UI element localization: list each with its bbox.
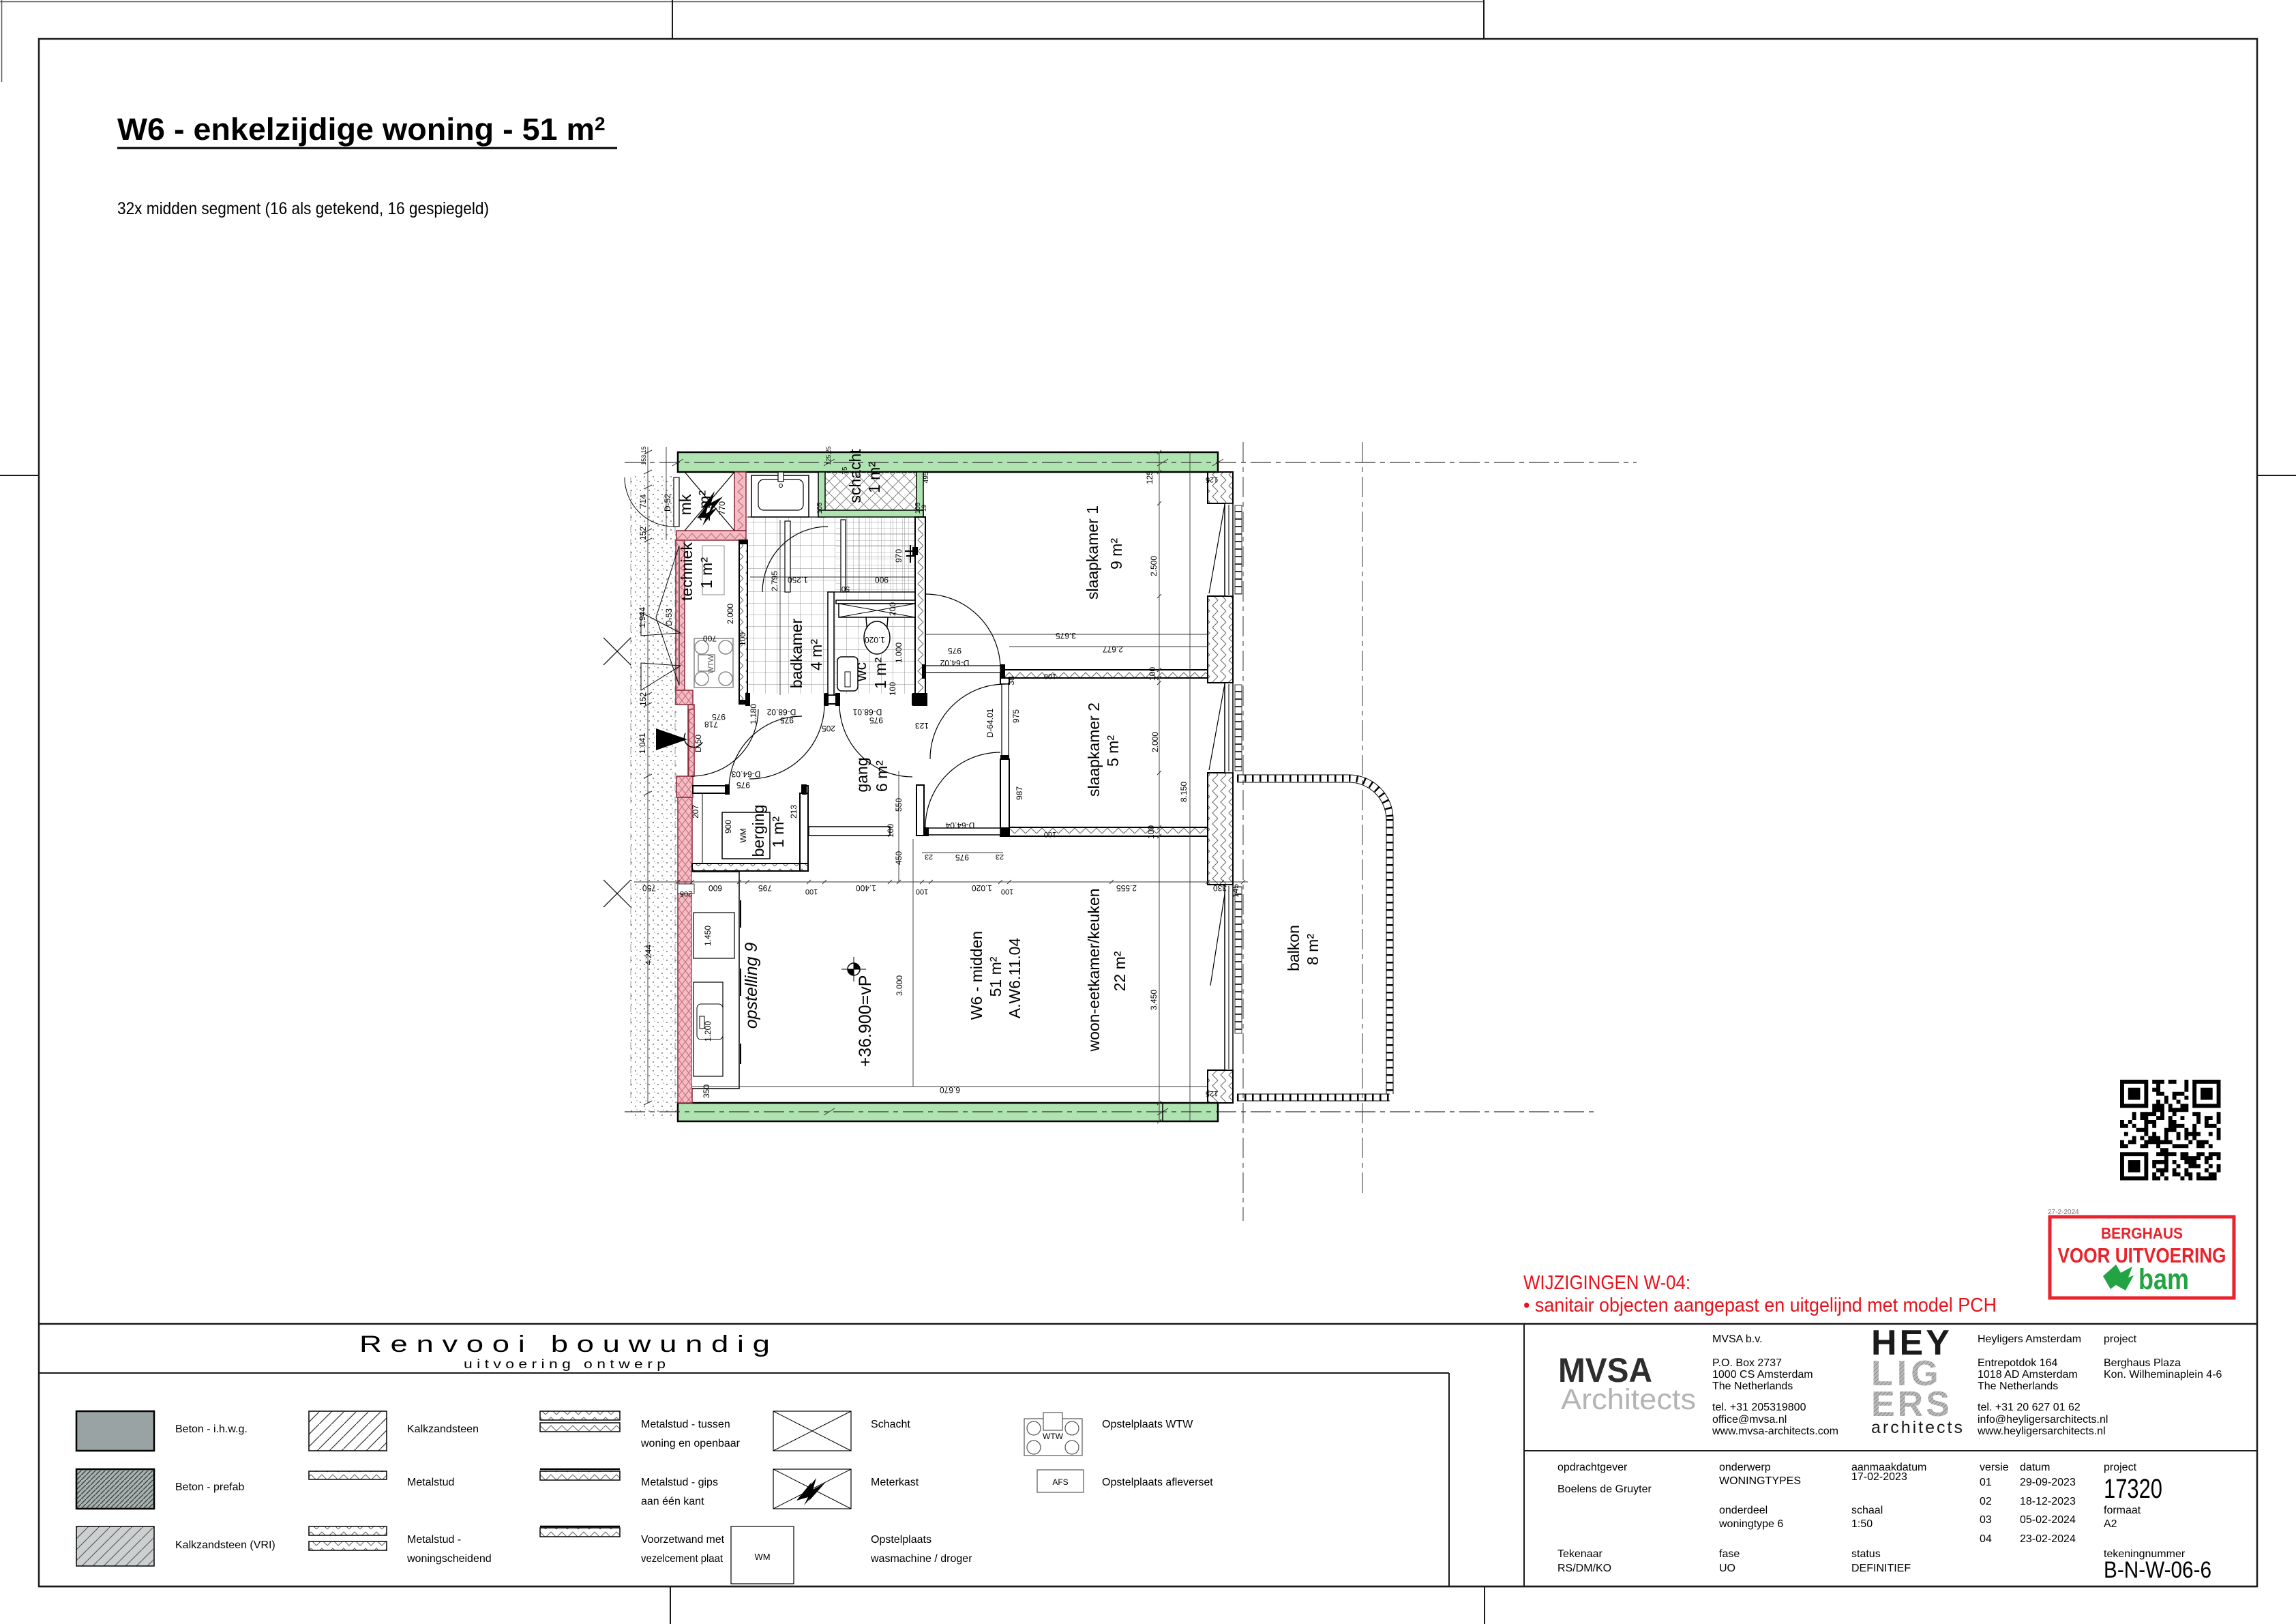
svg-text:38: 38: [1007, 676, 1016, 685]
svg-text:100: 100: [805, 887, 818, 896]
svg-text:tel. +31 205319800: tel. +31 205319800: [1712, 1402, 1806, 1413]
svg-text:Heyligers Amsterdam: Heyligers Amsterdam: [1978, 1333, 2081, 1345]
svg-text:P.O. Box 2737: P.O. Box 2737: [1712, 1357, 1782, 1369]
svg-text:versie: versie: [1980, 1462, 2009, 1473]
svg-text:123: 123: [915, 721, 929, 730]
svg-text:Architects: Architects: [1561, 1383, 1696, 1416]
svg-text:onderwerp: onderwerp: [1719, 1462, 1771, 1473]
svg-text:DEFINITIEF: DEFINITIEF: [1851, 1563, 1911, 1574]
svg-text:770: 770: [717, 501, 727, 515]
svg-text:152: 152: [638, 527, 648, 540]
svg-text:bam: bam: [2138, 1263, 2189, 1296]
svg-text:970: 970: [894, 549, 904, 563]
svg-text:woningscheidend: woningscheidend: [406, 1553, 492, 1565]
svg-text:Opstelplaats: Opstelplaats: [871, 1534, 931, 1546]
svg-text:29-09-2023: 29-09-2023: [2020, 1477, 2076, 1488]
svg-text:schaal: schaal: [1851, 1505, 1883, 1516]
svg-text:schacht: schacht: [846, 449, 864, 503]
svg-text:105: 105: [816, 502, 824, 514]
svg-text:woningtype 6: woningtype 6: [1718, 1518, 1783, 1530]
svg-text:8 m²: 8 m²: [1304, 934, 1322, 965]
svg-text:100: 100: [1148, 667, 1157, 681]
svg-text:opdrachtgever: opdrachtgever: [1557, 1462, 1628, 1473]
svg-text:project: project: [2104, 1333, 2137, 1345]
svg-text:WM: WM: [739, 828, 748, 842]
svg-text:1.041: 1.041: [638, 733, 647, 754]
svg-text:berging: berging: [749, 805, 767, 857]
svg-text:2.555: 2.555: [1116, 883, 1137, 893]
svg-text:1 m²: 1 m²: [865, 462, 883, 493]
svg-text:fase: fase: [1719, 1548, 1740, 1560]
svg-text:Schacht: Schacht: [871, 1419, 910, 1430]
svg-text:550: 550: [894, 798, 904, 812]
svg-text:W6 - enkelzijdige woning - 51: W6 - enkelzijdige woning - 51 m2: [117, 112, 606, 147]
svg-text:B-N-W-06-6: B-N-W-06-6: [2104, 1557, 2211, 1583]
svg-text:3.450: 3.450: [1149, 990, 1159, 1010]
svg-text:Metalstud - tussen: Metalstud - tussen: [641, 1419, 730, 1430]
svg-text:opstelling 9: opstelling 9: [742, 943, 761, 1029]
svg-text:795: 795: [758, 883, 772, 893]
svg-text:207: 207: [691, 805, 700, 818]
svg-text:450: 450: [894, 851, 904, 865]
svg-text:350: 350: [702, 1084, 711, 1098]
svg-text:woning en openbaar: woning en openbaar: [640, 1438, 741, 1449]
svg-text:17-02-2023: 17-02-2023: [1851, 1471, 1907, 1483]
svg-text:WM: WM: [754, 1552, 770, 1562]
svg-text:architects: architects: [1871, 1418, 1965, 1437]
svg-text:900: 900: [875, 575, 889, 585]
svg-text:www.mvsa-architects.com: www.mvsa-architects.com: [1712, 1426, 1838, 1437]
svg-text:900: 900: [724, 820, 733, 833]
svg-text:woon-eetkamer/keuken: woon-eetkamer/keuken: [1085, 888, 1103, 1052]
svg-text:status: status: [1851, 1548, 1881, 1560]
svg-text:05-02-2024: 05-02-2024: [2020, 1514, 2076, 1526]
svg-text:D-52: D-52: [663, 494, 672, 512]
svg-text:D-64.03: D-64.03: [731, 769, 760, 779]
svg-text:Metalstud: Metalstud: [407, 1477, 454, 1488]
svg-text:D-53: D-53: [664, 608, 674, 626]
svg-text:100: 100: [888, 682, 897, 696]
svg-text:1.180: 1.180: [749, 704, 758, 724]
svg-text:UO: UO: [1719, 1563, 1735, 1574]
svg-text:200: 200: [888, 602, 897, 616]
svg-text:8.150: 8.150: [1179, 782, 1189, 802]
svg-text:6.670: 6.670: [940, 1085, 960, 1095]
svg-text:495: 495: [923, 471, 930, 483]
svg-text:17320: 17320: [2104, 1474, 2162, 1504]
svg-text:153,15: 153,15: [640, 446, 647, 465]
svg-text:Opstelplaats afleverset: Opstelplaats afleverset: [1102, 1477, 1213, 1488]
svg-text:19: 19: [921, 505, 927, 512]
svg-text:Meterkast: Meterkast: [871, 1477, 919, 1488]
svg-text:1000 CS Amsterdam: 1000 CS Amsterdam: [1712, 1369, 1813, 1381]
svg-text:badkamer: badkamer: [788, 619, 805, 689]
svg-text:2.795: 2.795: [770, 571, 779, 591]
svg-text:Boelens de Gruyter: Boelens de Gruyter: [1557, 1483, 1652, 1495]
svg-text:D-50: D-50: [694, 735, 703, 752]
svg-text:04: 04: [1980, 1533, 1992, 1545]
svg-text:AFS: AFS: [1052, 1477, 1068, 1487]
svg-text:18-12-2023: 18-12-2023: [2020, 1496, 2076, 1507]
svg-text:D-64.02: D-64.02: [940, 658, 969, 668]
svg-text:1:50: 1:50: [1851, 1518, 1873, 1530]
svg-text:987: 987: [1015, 786, 1024, 800]
svg-text:formaat: formaat: [2104, 1505, 2141, 1516]
svg-text:tel. +31 20 627 01 62: tel. +31 20 627 01 62: [1978, 1402, 2081, 1413]
svg-text:onderdeel: onderdeel: [1719, 1505, 1768, 1516]
svg-text:975: 975: [955, 853, 969, 862]
svg-text:975: 975: [948, 646, 961, 655]
svg-text:2.677: 2.677: [1103, 645, 1123, 654]
svg-text:975: 975: [1011, 709, 1021, 723]
svg-text:23-02-2024: 23-02-2024: [2020, 1533, 2076, 1545]
svg-text:2.000: 2.000: [1150, 732, 1160, 752]
svg-text:750: 750: [642, 883, 656, 893]
svg-text:330: 330: [1213, 883, 1227, 893]
svg-text:1.020: 1.020: [972, 883, 992, 893]
svg-text:A2: A2: [2104, 1518, 2117, 1530]
svg-text:714: 714: [638, 494, 648, 508]
svg-text:700: 700: [703, 634, 717, 643]
svg-text:WTW: WTW: [1043, 1432, 1064, 1441]
svg-text:www.heyligersarchitects.nl: www.heyligersarchitects.nl: [1977, 1426, 2106, 1437]
svg-text:1 m²: 1 m²: [698, 557, 715, 589]
svg-text:office@mvsa.nl: office@mvsa.nl: [1712, 1414, 1787, 1426]
svg-text:Beton - prefab: Beton - prefab: [175, 1481, 245, 1493]
svg-text:balkon: balkon: [1285, 925, 1302, 971]
svg-text:50: 50: [841, 585, 850, 593]
svg-text:02: 02: [1980, 1496, 1992, 1507]
svg-text:wasmachine / droger: wasmachine / droger: [870, 1553, 972, 1565]
svg-text:project: project: [2104, 1462, 2137, 1473]
svg-text:1018 AD Amsterdam: 1018 AD Amsterdam: [1978, 1369, 2078, 1381]
svg-text:R e n v o o i b o u w u n d: R e n v o o i b o u w u n d i g: [359, 1331, 770, 1357]
svg-text:1.250: 1.250: [788, 575, 808, 585]
svg-text:975: 975: [736, 780, 750, 790]
svg-text:125,25: 125,25: [825, 446, 832, 465]
svg-text:u i t v o e r i n g o n t w: u i t v o e r i n g o n t w e r p: [464, 1357, 666, 1371]
svg-text:Voorzetwand met: Voorzetwand met: [641, 1534, 725, 1546]
svg-text:+36.900=vP: +36.900=vP: [856, 975, 875, 1067]
svg-text:27-2-2024: 27-2-2024: [2048, 1209, 2079, 1216]
svg-text:wc: wc: [852, 662, 869, 682]
svg-text:Tekenaar: Tekenaar: [1557, 1548, 1602, 1560]
svg-text:1 m²: 1 m²: [871, 658, 889, 689]
svg-text:125: 125: [1206, 475, 1218, 484]
svg-text:5 m²: 5 m²: [1104, 735, 1122, 767]
svg-text:Metalstud -: Metalstud -: [407, 1534, 461, 1546]
svg-text:D-68.02: D-68.02: [766, 707, 796, 717]
svg-text:RS/DM/KO: RS/DM/KO: [1557, 1563, 1611, 1574]
svg-text:4 m²: 4 m²: [807, 639, 825, 670]
svg-text:Beton - i.h.w.g.: Beton - i.h.w.g.: [175, 1423, 248, 1435]
svg-text:125: 125: [1145, 471, 1154, 484]
svg-text:Kalkzandsteen: Kalkzandsteen: [407, 1423, 479, 1435]
svg-text:23: 23: [996, 853, 1004, 861]
svg-text:datum: datum: [2020, 1462, 2050, 1473]
svg-text:1.200: 1.200: [703, 1021, 713, 1042]
svg-text:3.675: 3.675: [1056, 631, 1076, 640]
svg-text:Metalstud - gips: Metalstud - gips: [641, 1477, 718, 1488]
svg-text:D-68.01: D-68.01: [852, 707, 882, 717]
svg-text:03: 03: [1980, 1514, 1992, 1526]
svg-text:1 m²: 1 m²: [769, 816, 787, 848]
svg-text:6 m²: 6 m²: [873, 761, 891, 792]
svg-text:100: 100: [1001, 887, 1013, 896]
svg-text:145: 145: [1231, 884, 1240, 898]
svg-text:gang: gang: [853, 757, 871, 792]
svg-text:23: 23: [925, 853, 933, 861]
svg-text:718: 718: [704, 720, 718, 729]
svg-text:Opstelplaats WTW: Opstelplaats WTW: [1102, 1419, 1193, 1430]
svg-text:vezelcement plaat: vezelcement plaat: [641, 1553, 724, 1565]
svg-text:125: 125: [1206, 1089, 1218, 1097]
svg-text:51 m²: 51 m²: [987, 956, 1004, 996]
svg-text:100: 100: [1146, 825, 1156, 839]
svg-text:32x midden segment (16 als get: 32x midden segment (16 als getekend, 16 …: [117, 199, 489, 218]
svg-text:1.400: 1.400: [856, 883, 876, 893]
svg-text:75: 75: [841, 467, 849, 475]
svg-text:slaapkamer 1: slaapkamer 1: [1084, 505, 1101, 600]
svg-text:1.000: 1.000: [894, 643, 904, 663]
svg-text:The Netherlands: The Netherlands: [1712, 1381, 1793, 1392]
svg-text:1.944: 1.944: [638, 607, 647, 628]
svg-text:techniek: techniek: [678, 542, 696, 601]
svg-text:213: 213: [789, 805, 799, 818]
svg-text:100: 100: [886, 824, 895, 838]
svg-text:205: 205: [680, 889, 692, 898]
svg-text:3.000: 3.000: [895, 975, 904, 996]
svg-text:152: 152: [638, 692, 648, 706]
svg-text:4.244: 4.244: [644, 945, 653, 965]
svg-text:Entrepotdok 164: Entrepotdok 164: [1978, 1357, 2058, 1369]
svg-text:100: 100: [1044, 672, 1056, 680]
svg-text:A.W6.11.04: A.W6.11.04: [1006, 938, 1024, 1019]
svg-text:WIJZIGINGEN W-04:: WIJZIGINGEN W-04:: [1523, 1272, 1690, 1294]
svg-text:W6 - midden: W6 - midden: [968, 931, 985, 1020]
svg-text:1.020: 1.020: [865, 635, 885, 645]
svg-text:mk: mk: [676, 494, 694, 515]
svg-text:100: 100: [1044, 830, 1056, 838]
svg-text:205: 205: [822, 724, 835, 733]
svg-text:info@heyligersarchitects.nl: info@heyligersarchitects.nl: [1978, 1414, 2108, 1426]
svg-text:slaapkamer 2: slaapkamer 2: [1085, 703, 1103, 797]
svg-text:22 m²: 22 m²: [1111, 951, 1129, 991]
svg-text:D-64.04: D-64.04: [945, 821, 974, 830]
svg-text:WTW: WTW: [707, 655, 715, 674]
svg-text:aan één kant: aan één kant: [641, 1496, 704, 1507]
svg-text:• sanitair objecten aangepast: • sanitair objecten aangepast en uitgeli…: [1523, 1295, 1997, 1316]
svg-text:9 m²: 9 m²: [1107, 538, 1125, 570]
svg-text:BERGHAUS: BERGHAUS: [2101, 1224, 2183, 1242]
svg-text:MVSA b.v.: MVSA b.v.: [1712, 1333, 1763, 1345]
svg-text:1 m²: 1 m²: [696, 490, 713, 522]
svg-text:2.500: 2.500: [1149, 556, 1159, 576]
svg-text:600: 600: [709, 883, 722, 893]
svg-text:Berghaus Plaza: Berghaus Plaza: [2104, 1357, 2181, 1369]
svg-text:D-64.01: D-64.01: [985, 708, 995, 737]
svg-text:2.000: 2.000: [726, 604, 735, 624]
svg-text:1.450: 1.450: [703, 926, 713, 946]
svg-text:WONINGTYPES: WONINGTYPES: [1719, 1475, 1801, 1487]
svg-text:Kalkzandsteen (VRI): Kalkzandsteen (VRI): [175, 1539, 275, 1551]
svg-text:Kon. Wilheminaplein 4-6: Kon. Wilheminaplein 4-6: [2104, 1369, 2222, 1381]
svg-text:The Netherlands: The Netherlands: [1978, 1381, 2058, 1392]
svg-text:100: 100: [738, 632, 747, 646]
svg-text:01: 01: [1980, 1477, 1992, 1488]
svg-text:100: 100: [916, 887, 928, 896]
